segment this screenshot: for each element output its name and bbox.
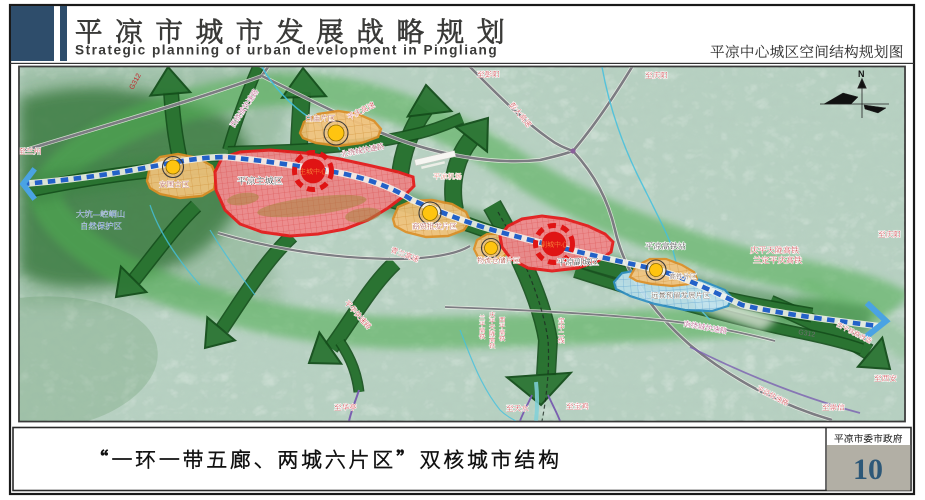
svg-text:Strategic planning of urban de: Strategic planning of urban development … <box>75 43 498 58</box>
svg-text:10: 10 <box>853 453 883 486</box>
svg-text:N: N <box>858 69 865 79</box>
